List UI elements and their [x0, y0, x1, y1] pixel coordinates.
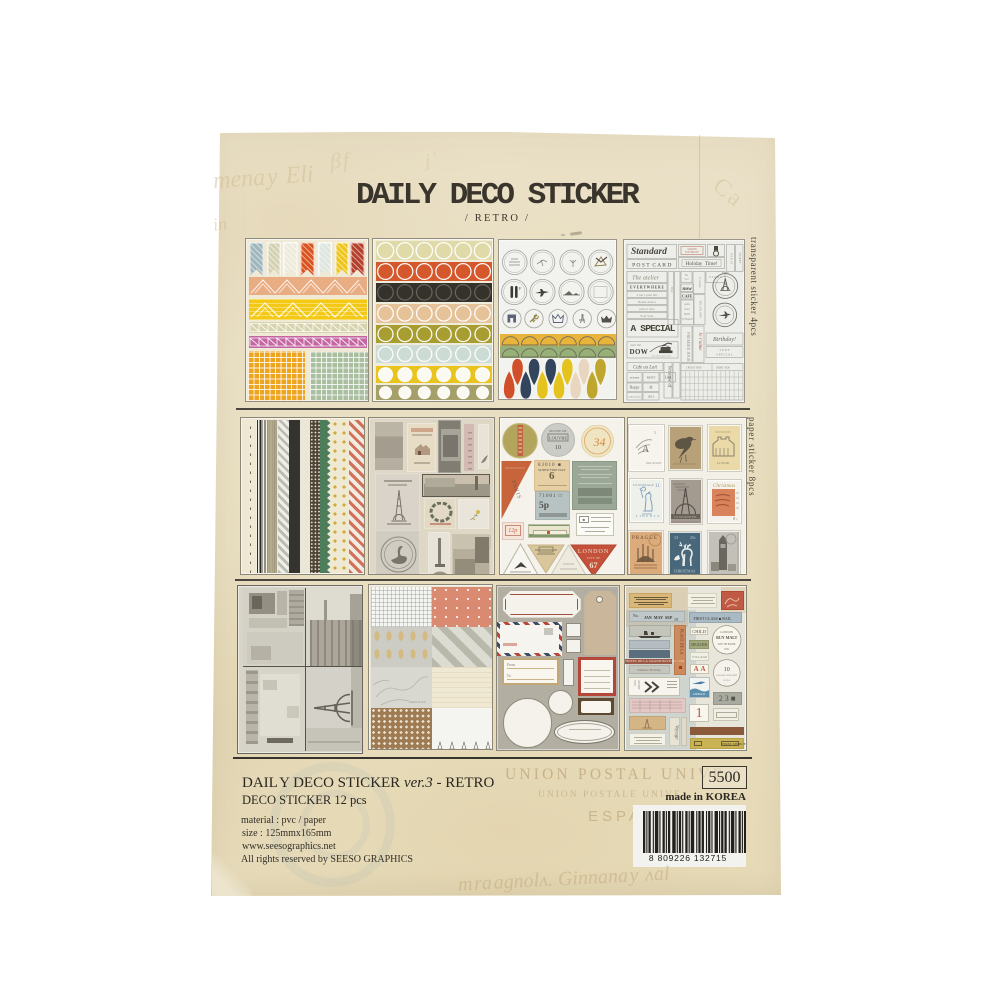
svg-text:PAR AVION: PAR AVION [646, 461, 662, 465]
svg-text:CHRISTMAS: CHRISTMAS [673, 569, 695, 573]
svg-text:DOW: DOW [630, 348, 649, 356]
svg-text:Le Grand: Le Grand [698, 277, 701, 288]
svg-text:34: 34 [593, 435, 606, 449]
svg-text:F: F [519, 286, 522, 291]
svg-text:Happy: Happy [629, 385, 639, 389]
svg-text:BEL AIR 1908: BEL AIR 1908 [699, 301, 702, 318]
svg-text:DEBIT SIDE: DEBIT SIDE [716, 367, 730, 370]
svg-text:No: No [685, 274, 689, 277]
svg-text:Je t’aime: Je t’aime [697, 332, 702, 351]
svg-text:CAFE: CAFE [682, 295, 693, 299]
svg-text:CITY OF: CITY OF [587, 556, 600, 560]
svg-text:TICKET: TICKET [738, 253, 742, 264]
svg-text:LIBERTY: LIBERTY [636, 514, 661, 518]
svg-text:&: & [649, 384, 653, 389]
svg-text:GRAND CONCERT: GRAND CONCERT [716, 674, 738, 677]
svg-text:SOUTH BANK: SOUTH BANK [718, 643, 736, 646]
svg-text:CREDIT SIDE: CREDIT SIDE [686, 367, 702, 370]
svg-text:5: 5 [654, 430, 656, 435]
svg-text:at home: at home [630, 375, 640, 379]
svg-text:AIRMAIL: AIRMAIL [693, 692, 706, 696]
svg-text:S P E C I A L: S P E C I A L [716, 352, 732, 356]
svg-text:LOUVRE: LOUVRE [549, 435, 567, 440]
svg-text:HALL: HALL [723, 679, 730, 682]
svg-text:The atelier: The atelier [632, 275, 660, 282]
svg-text:PREMIER JOUR: PREMIER JOUR [686, 332, 691, 362]
svg-text:PARIS PLAN: PARIS PLAN [409, 700, 427, 704]
svg-text:the finest typewriter: the finest typewriter [652, 355, 671, 358]
svg-text:BON: BON [684, 313, 690, 316]
svg-text:1951: 1951 [724, 648, 730, 651]
svg-text:Bonne chance: Bonne chance [638, 300, 657, 304]
svg-text:Cafe au Lait: Cafe au Lait [633, 366, 658, 371]
svg-text:512: 512 [684, 278, 689, 281]
svg-text:LUXOR: LUXOR [717, 461, 730, 465]
svg-text:A: A [642, 444, 650, 455]
svg-text:because of: because of [667, 366, 672, 388]
svg-text:LONDON: LONDON [720, 630, 733, 634]
svg-text:RENT: RENT [647, 375, 657, 379]
svg-text:10: 10 [724, 667, 730, 673]
svg-text:11: 11 [655, 484, 660, 489]
svg-text:A SPECIAL: A SPECIAL [631, 323, 676, 334]
svg-text:FLEURISTE: FLEURISTE [685, 251, 699, 254]
svg-text:E V E R Y W H E R E: E V E R Y W H E R E [630, 286, 665, 290]
svg-text:fleur: fleur [685, 308, 690, 311]
svg-text:US POSTAGE: US POSTAGE [633, 483, 654, 487]
svg-text:VOYAGE: VOYAGE [681, 318, 693, 321]
svg-text:mail the: mail the [630, 343, 642, 347]
svg-text:Standard: Standard [631, 247, 667, 257]
svg-text:petit et retro: petit et retro [639, 307, 655, 311]
svg-text:Day!: Day! [670, 287, 674, 293]
svg-text:2013: 2013 [648, 394, 655, 398]
svg-text:Birthday!: Birthday! [713, 337, 736, 343]
svg-text:67: 67 [590, 561, 598, 570]
svg-text:Pour Vous: Pour Vous [640, 314, 654, 318]
svg-text:now: now [683, 286, 693, 292]
svg-text:MUSEE DE: MUSEE DE [549, 429, 566, 433]
svg-text:Christmas: Christmas [713, 483, 736, 489]
svg-text:PRAGUE: PRAGUE [632, 536, 658, 541]
svg-text:in the Forest: in the Forest [629, 395, 641, 398]
svg-text:it isn’t quite this: it isn’t quite this [637, 293, 659, 297]
svg-text:25c: 25c [690, 535, 696, 540]
svg-text:PARIS: PARIS [722, 272, 729, 275]
svg-text:Holiday Time!: Holiday Time! [686, 261, 718, 267]
svg-text:13: 13 [674, 535, 678, 540]
svg-text:P A R I S: P A R I S [730, 253, 734, 264]
svg-text:LA TOUR EIFFEL: LA TOUR EIFFEL [674, 515, 697, 519]
svg-text:10: 10 [555, 445, 561, 451]
svg-text:LONDON: LONDON [578, 549, 609, 555]
svg-text:c: c [736, 517, 738, 521]
svg-text:BUY MALT: BUY MALT [716, 635, 737, 640]
svg-text:P O S T C A R D: P O S T C A R D [632, 262, 671, 268]
svg-text:petite: petite [684, 303, 691, 306]
